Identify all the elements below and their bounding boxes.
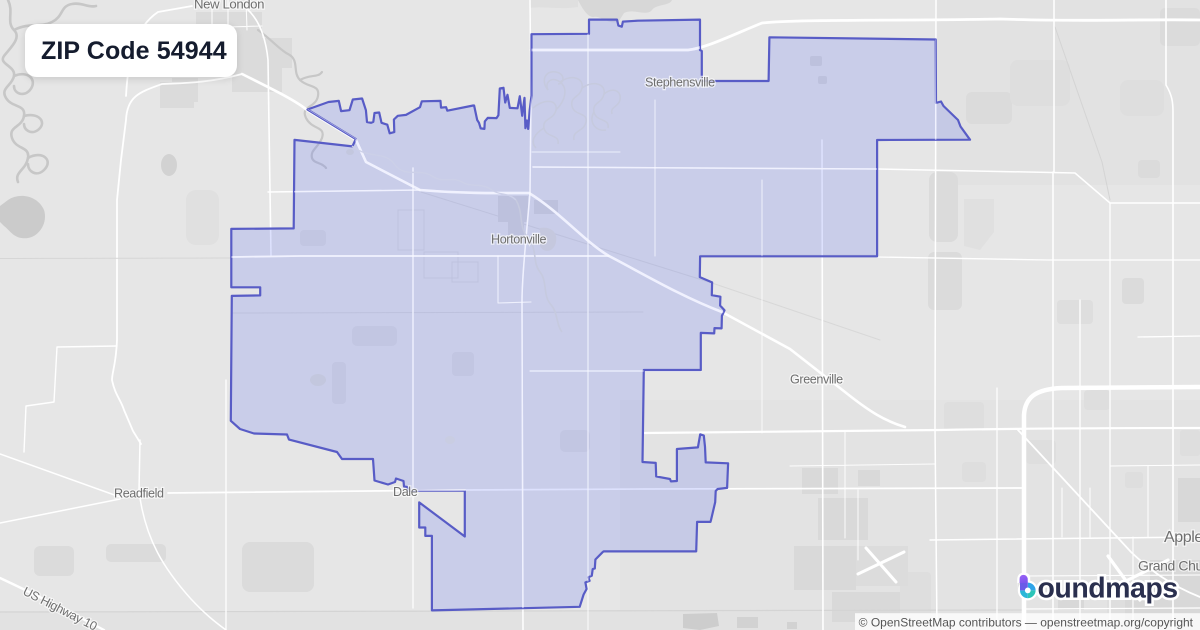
svg-text:© OpenStreetMap contributors —: © OpenStreetMap contributors — openstree… [859, 615, 1194, 629]
svg-text:oundmaps: oundmaps [1038, 573, 1178, 605]
svg-text:Apple: Apple [1164, 529, 1200, 546]
svg-text:Dale: Dale [393, 485, 418, 499]
svg-text:Grand Chute: Grand Chute [1138, 558, 1200, 574]
svg-text:Hortonville: Hortonville [491, 233, 546, 247]
svg-text:Readfield: Readfield [114, 487, 164, 501]
svg-text:New London: New London [194, 0, 264, 12]
svg-text:Stephensville: Stephensville [645, 76, 715, 90]
svg-text:Greenville: Greenville [790, 373, 843, 387]
